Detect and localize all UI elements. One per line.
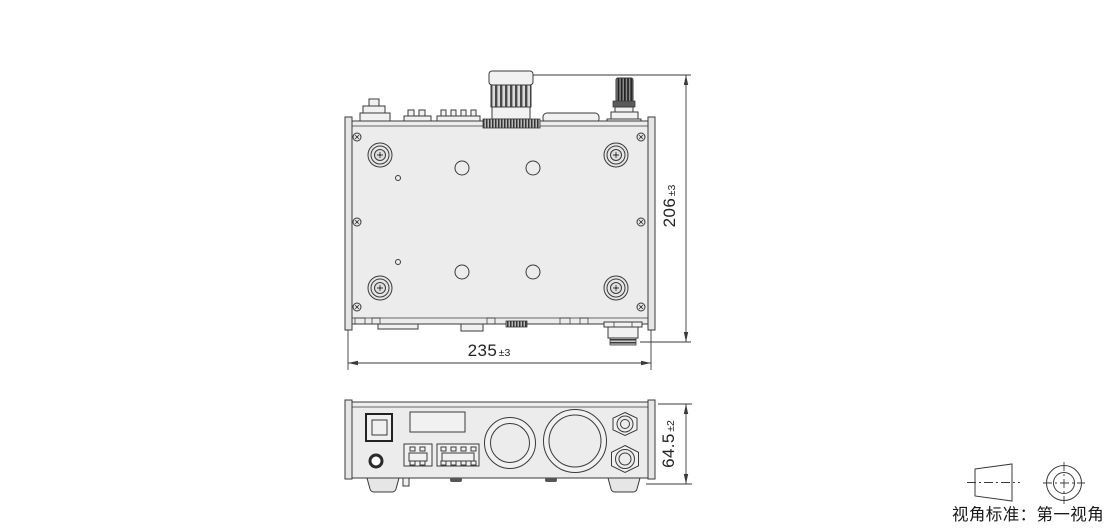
foot-right <box>608 478 640 492</box>
bottom-bump <box>450 478 462 482</box>
foot-left <box>367 478 399 492</box>
screw-icon <box>353 133 361 141</box>
screw-icon <box>637 218 645 226</box>
frustum-end-view <box>1043 462 1085 504</box>
side-rail-left-front-view <box>345 400 352 479</box>
connector-2pin-front <box>404 444 432 466</box>
side-rail-right-front-view <box>648 400 655 479</box>
technical-drawing <box>0 0 1110 530</box>
display-window <box>410 412 465 432</box>
screw-icon <box>637 133 645 141</box>
bottom-tab <box>403 478 409 486</box>
front-view <box>345 400 655 492</box>
power-connector-bottom <box>604 322 642 345</box>
corner-mount <box>604 276 628 300</box>
chassis-body-top-view <box>352 121 648 324</box>
dimension-depth-label: 206 ±3 <box>660 144 680 268</box>
corner-mount <box>604 143 628 167</box>
tuning-knob-top <box>489 71 533 119</box>
bottom-bump <box>545 478 557 482</box>
screw-icon <box>637 303 645 311</box>
dimension-width-label: 235 ±3 <box>429 341 549 361</box>
knob-large <box>544 410 607 473</box>
bnc-connector-upper <box>613 413 637 436</box>
connector-4pin-front <box>437 444 479 466</box>
antenna-connector-top <box>607 78 641 125</box>
front-tab-wide <box>378 324 418 329</box>
dimension-height-value: 64.5 <box>659 433 679 468</box>
dimension-height-label: 64.5 ±2 <box>659 382 679 506</box>
screw-icon <box>353 303 361 311</box>
projection-standard-caption: 视角标准：第一视角 <box>952 501 1104 525</box>
toggle-switch-top <box>360 99 390 122</box>
first-angle-projection-symbol <box>967 462 1085 504</box>
jack-socket <box>370 455 382 467</box>
knob-small <box>485 418 536 469</box>
side-rail-left-top-view <box>345 117 352 330</box>
dimension-width-tolerance: ±3 <box>499 347 511 359</box>
dimension-width-value: 235 <box>468 341 498 361</box>
side-rail-right-top-view <box>648 117 655 330</box>
front-tab-mid <box>461 324 483 331</box>
corner-mount <box>368 143 392 167</box>
screw-icon <box>353 218 361 226</box>
top-view <box>345 71 655 345</box>
front-tab-ribbed <box>506 321 527 327</box>
corner-mount <box>368 276 392 300</box>
dimension-drawing-canvas: 235 ±3 206 ±3 64.5 ±2 视角标准：第一视角 <box>0 0 1110 530</box>
tuning-knob-knurl <box>483 119 540 128</box>
power-button <box>366 414 392 441</box>
dimension-height-tolerance: ±2 <box>665 420 677 432</box>
dimension-depth-tolerance: ±3 <box>666 185 678 197</box>
dimension-depth-value: 206 <box>660 198 680 228</box>
